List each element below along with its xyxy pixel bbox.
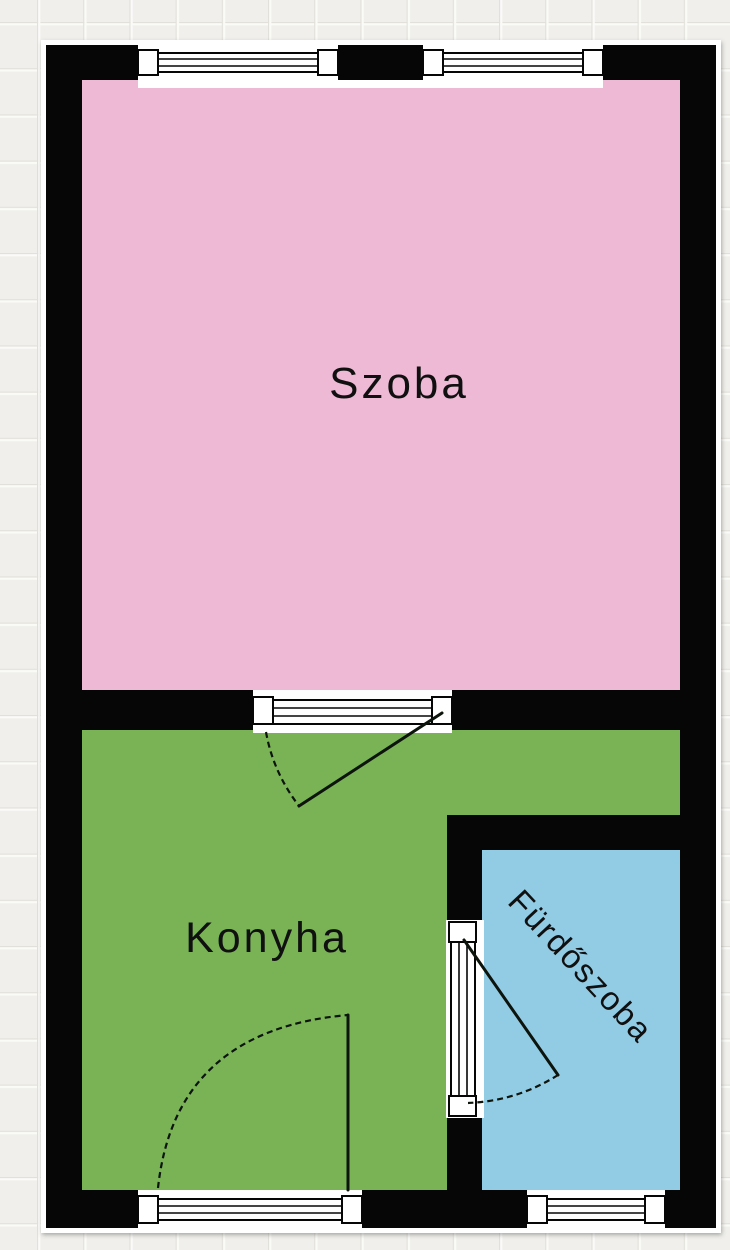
door-glazing xyxy=(273,700,432,724)
wall-segment-between-windows xyxy=(338,45,423,80)
window-jamb xyxy=(645,1196,665,1223)
door-jamb xyxy=(253,697,273,724)
door-glazing xyxy=(451,942,475,1096)
floorplan: Szoba Konyha Fürdőszoba xyxy=(41,40,721,1233)
window-jamb xyxy=(423,50,443,75)
label-szoba: Szoba xyxy=(329,359,469,408)
floorplan-page: Szoba Konyha Fürdőszoba xyxy=(0,0,730,1250)
window-glazing xyxy=(443,53,583,72)
window-top-right xyxy=(423,50,603,75)
door-glazing xyxy=(158,1199,342,1220)
window-jamb xyxy=(527,1196,547,1223)
door-jamb xyxy=(138,1196,158,1223)
window-jamb xyxy=(318,50,338,75)
window-glazing xyxy=(547,1199,645,1220)
window-jamb xyxy=(138,50,158,75)
floorplan-canvas: Szoba Konyha Fürdőszoba xyxy=(0,0,730,1250)
window-glazing xyxy=(158,53,318,72)
window-jamb xyxy=(583,50,603,75)
door-jamb xyxy=(449,922,476,942)
window-furdoszoba xyxy=(527,1190,665,1233)
door-jamb xyxy=(449,1096,476,1116)
label-konyha: Konyha xyxy=(185,914,349,962)
door-jamb xyxy=(342,1196,362,1223)
door-jamb xyxy=(432,697,452,724)
